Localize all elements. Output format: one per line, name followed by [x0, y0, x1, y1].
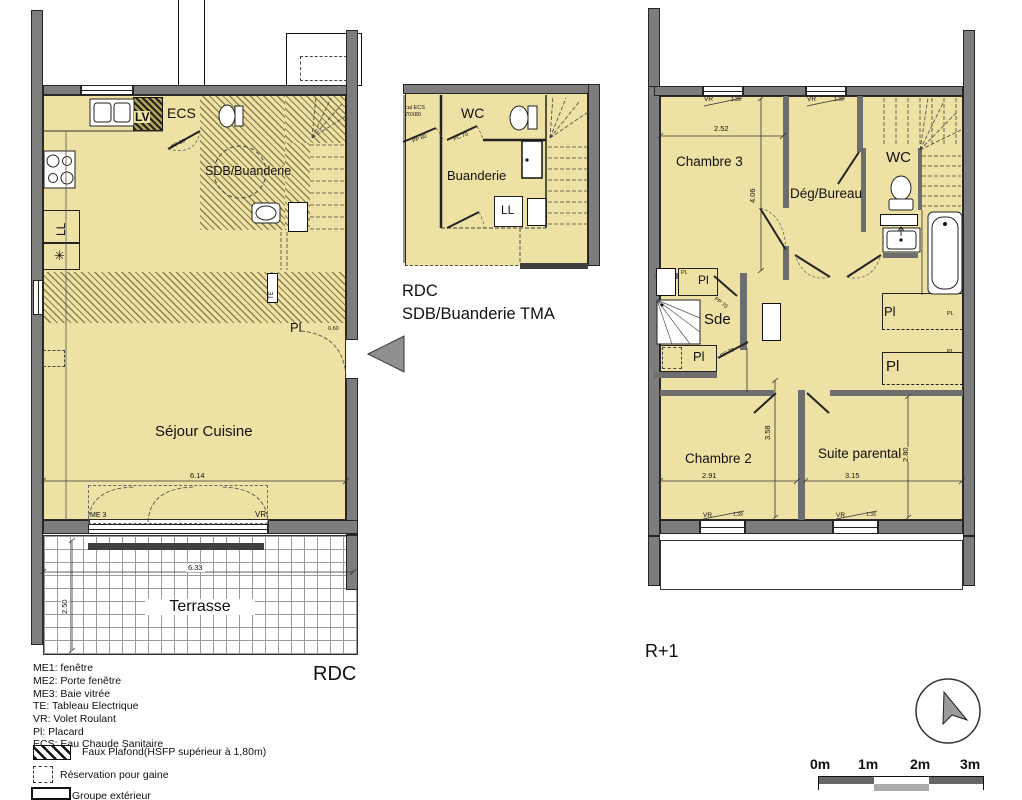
wall-sde-bottom — [654, 372, 717, 378]
terrasse-width-dim: 6.33 — [186, 564, 205, 572]
vr-bottom-1: VR — [703, 513, 712, 520]
rdc-bottom-wall-b — [268, 520, 358, 534]
wall-suite-top — [830, 390, 963, 396]
pl-right-1: Pl — [884, 305, 896, 318]
rdc-bottom-wall-a — [43, 520, 90, 534]
sdb-door-leaf — [288, 202, 308, 232]
niche-box — [656, 268, 676, 296]
vr-label-rdc: VR — [255, 511, 266, 519]
sejour-room-label: Séjour Cuisine — [155, 424, 253, 439]
rdc-right-wall-upper — [346, 30, 358, 340]
r1-bottom-wall-a — [660, 520, 700, 534]
wall-c3-deg-lower — [783, 246, 789, 280]
rdc-left-wall — [31, 10, 43, 645]
ll-label-tma: LL — [501, 204, 514, 216]
fridge-symbol: ✳ — [54, 249, 65, 262]
r1-left-stub-bottom — [648, 536, 660, 586]
r1-title: R+1 — [645, 642, 679, 660]
pl-right-2: Pl — [886, 359, 899, 374]
vr-top-2: VR — [807, 97, 816, 104]
buanderie-room-label: Buanderie — [447, 169, 506, 182]
r1-bottom-wall-b — [745, 520, 833, 534]
vr-bottom-1-dim: 1.39 — [733, 513, 743, 518]
vr-top-1-dim: 1.39 — [731, 98, 741, 103]
tma-right-wall — [588, 84, 600, 266]
legend-item-pl: Pl: Placard — [33, 727, 84, 738]
legend-groupe: Groupe extérieur — [72, 791, 151, 800]
wc-label-r1: WC — [886, 150, 911, 165]
pl-small-right-2: PL — [947, 350, 954, 356]
gaine-reservation-r1 — [662, 347, 682, 369]
legend-reservation: Réservation pour gaine — [60, 770, 169, 781]
baie-vitree-glazing — [88, 524, 268, 534]
pl-small-right-1: PL — [947, 312, 954, 318]
vr-top-2-dim: 1.39 — [834, 98, 844, 103]
rdc-title: RDC — [313, 664, 356, 684]
party-wall-stub — [178, 0, 205, 86]
r1-top-wall-b — [743, 86, 806, 96]
floor-plan-sheet: LV ECS LL ✳ TE SDB/Buanderie PP 80 Pl 0.… — [0, 0, 1022, 800]
vr-bottom-2-dim: 1.39 — [866, 513, 876, 518]
north-arrow-icon — [916, 679, 980, 743]
r1-left-wall — [648, 86, 660, 536]
r1-window-bottom-1 — [700, 520, 745, 534]
r1-right-stub-bottom — [963, 536, 975, 586]
sde-door-leaf — [762, 303, 781, 341]
scale-2m: 2m — [910, 757, 930, 771]
r1-window-top-1 — [703, 86, 743, 96]
rdc-top-wall-a — [43, 85, 81, 95]
terrasse-room-label: Terrasse — [145, 599, 255, 615]
baie-vitree-zone — [88, 485, 268, 524]
chambre3-height-dim: 4.06 — [749, 188, 757, 203]
pl-label-rdc: Pl — [290, 321, 302, 334]
rdc-top-wall-b — [133, 85, 358, 95]
stairs-hatch-top — [285, 95, 346, 143]
r1-window-bottom-2 — [833, 520, 878, 534]
terrasse-depth-dim: 2.50 — [61, 599, 69, 614]
rdc-right-wall-lower — [346, 378, 358, 535]
r1-window-top-2 — [806, 86, 846, 96]
lv-label: LV — [134, 111, 150, 123]
te-label: TE — [269, 291, 275, 299]
r1-top-wall-c — [846, 86, 963, 96]
legend-item-me1: ME1: fenêtre — [33, 663, 93, 674]
local-ecs-line1: cal ECS — [405, 106, 425, 112]
vr-top-1: VR — [704, 97, 713, 104]
r1-bottom-wall-c — [878, 520, 963, 534]
chambre2-width-dim: 2.91 — [700, 472, 719, 480]
gaine-reservation-left — [43, 350, 65, 367]
gaine-reservation-top — [300, 56, 352, 81]
faux-plafond-band — [43, 272, 346, 323]
terrasse-wall-stub — [346, 535, 358, 590]
r1-top-wall-a — [654, 86, 703, 96]
left-wall-window — [33, 280, 43, 315]
sejour-width-dim: 6.14 — [188, 472, 207, 480]
wc-shelf — [880, 214, 918, 226]
sdb-room-label: SDB/Buanderie — [205, 165, 291, 178]
wall-sde-right — [740, 273, 747, 350]
tma-appliance — [527, 198, 547, 226]
wall-c3-deg-upper — [783, 96, 789, 208]
legend-item-te: TE: Tableau Electrique — [33, 701, 138, 712]
scale-3m: 3m — [960, 757, 980, 771]
scale-bar-body — [818, 776, 984, 790]
wall-wc-stairs — [918, 148, 922, 210]
wall-c2-suite — [798, 390, 805, 520]
wall-c2-top — [660, 390, 774, 396]
pl-top-left: Pl — [698, 274, 709, 286]
r1-left-stub-top — [648, 8, 660, 88]
pl-dim-rdc: 0.60 — [328, 327, 339, 333]
scale-1m: 1m — [858, 757, 878, 771]
chambre2-height-dim: 3.58 — [764, 425, 772, 440]
groupe-swatch — [31, 787, 71, 800]
wall-deg-bottom — [883, 253, 918, 258]
r1-right-wall — [963, 30, 975, 536]
reservation-swatch — [33, 766, 53, 783]
chambre2-room-label: Chambre 2 — [685, 452, 752, 466]
wc-label-tma: WC — [461, 106, 484, 120]
tma-title-line1: RDC — [402, 283, 438, 300]
local-ecs-line2: 70X80 — [405, 113, 421, 119]
deg-bureau-room-label: Dég/Bureau — [790, 187, 862, 201]
me3-label: ME 3 — [90, 512, 106, 519]
vr-bottom-2: VR — [836, 513, 845, 520]
sde-room-label: Sde — [704, 312, 731, 327]
r1-footprint-below — [660, 540, 963, 590]
scale-0m: 0m — [810, 757, 830, 771]
chambre3-room-label: Chambre 3 — [676, 155, 743, 169]
suite-room-label: Suite parentale — [818, 447, 909, 461]
legend-faux-plafond: Faux Plafond(HSFP supérieur à 1,80m) — [82, 747, 266, 758]
legend-item-vr: VR: Volet Roulant — [33, 714, 116, 725]
wall-deg-wc — [857, 96, 863, 152]
tma-title-line2: SDB/Buanderie TMA — [402, 306, 555, 323]
kitchen-window-me1 — [81, 85, 133, 95]
chambre3-width-dim: 2.52 — [712, 125, 731, 133]
ll-label-rdc: LL — [55, 223, 67, 236]
terrasse-tiles — [43, 535, 358, 655]
legend-item-me2: ME2: Porte fenêtre — [33, 676, 121, 687]
pl-bottom-left: Pl — [693, 350, 705, 363]
pl-small-top-left: PL — [681, 271, 688, 277]
sdb-hatch — [200, 95, 285, 230]
detail-pointer-arrow — [368, 336, 404, 372]
legend-item-me3: ME3: Baie vitrée — [33, 689, 110, 700]
faux-plafond-swatch — [33, 745, 71, 760]
suite-width-dim: 3.15 — [843, 472, 862, 480]
ecs-label: ECS — [167, 106, 196, 120]
suite-height-dim: 2.80 — [902, 447, 910, 462]
tma-top-wall — [403, 84, 600, 94]
